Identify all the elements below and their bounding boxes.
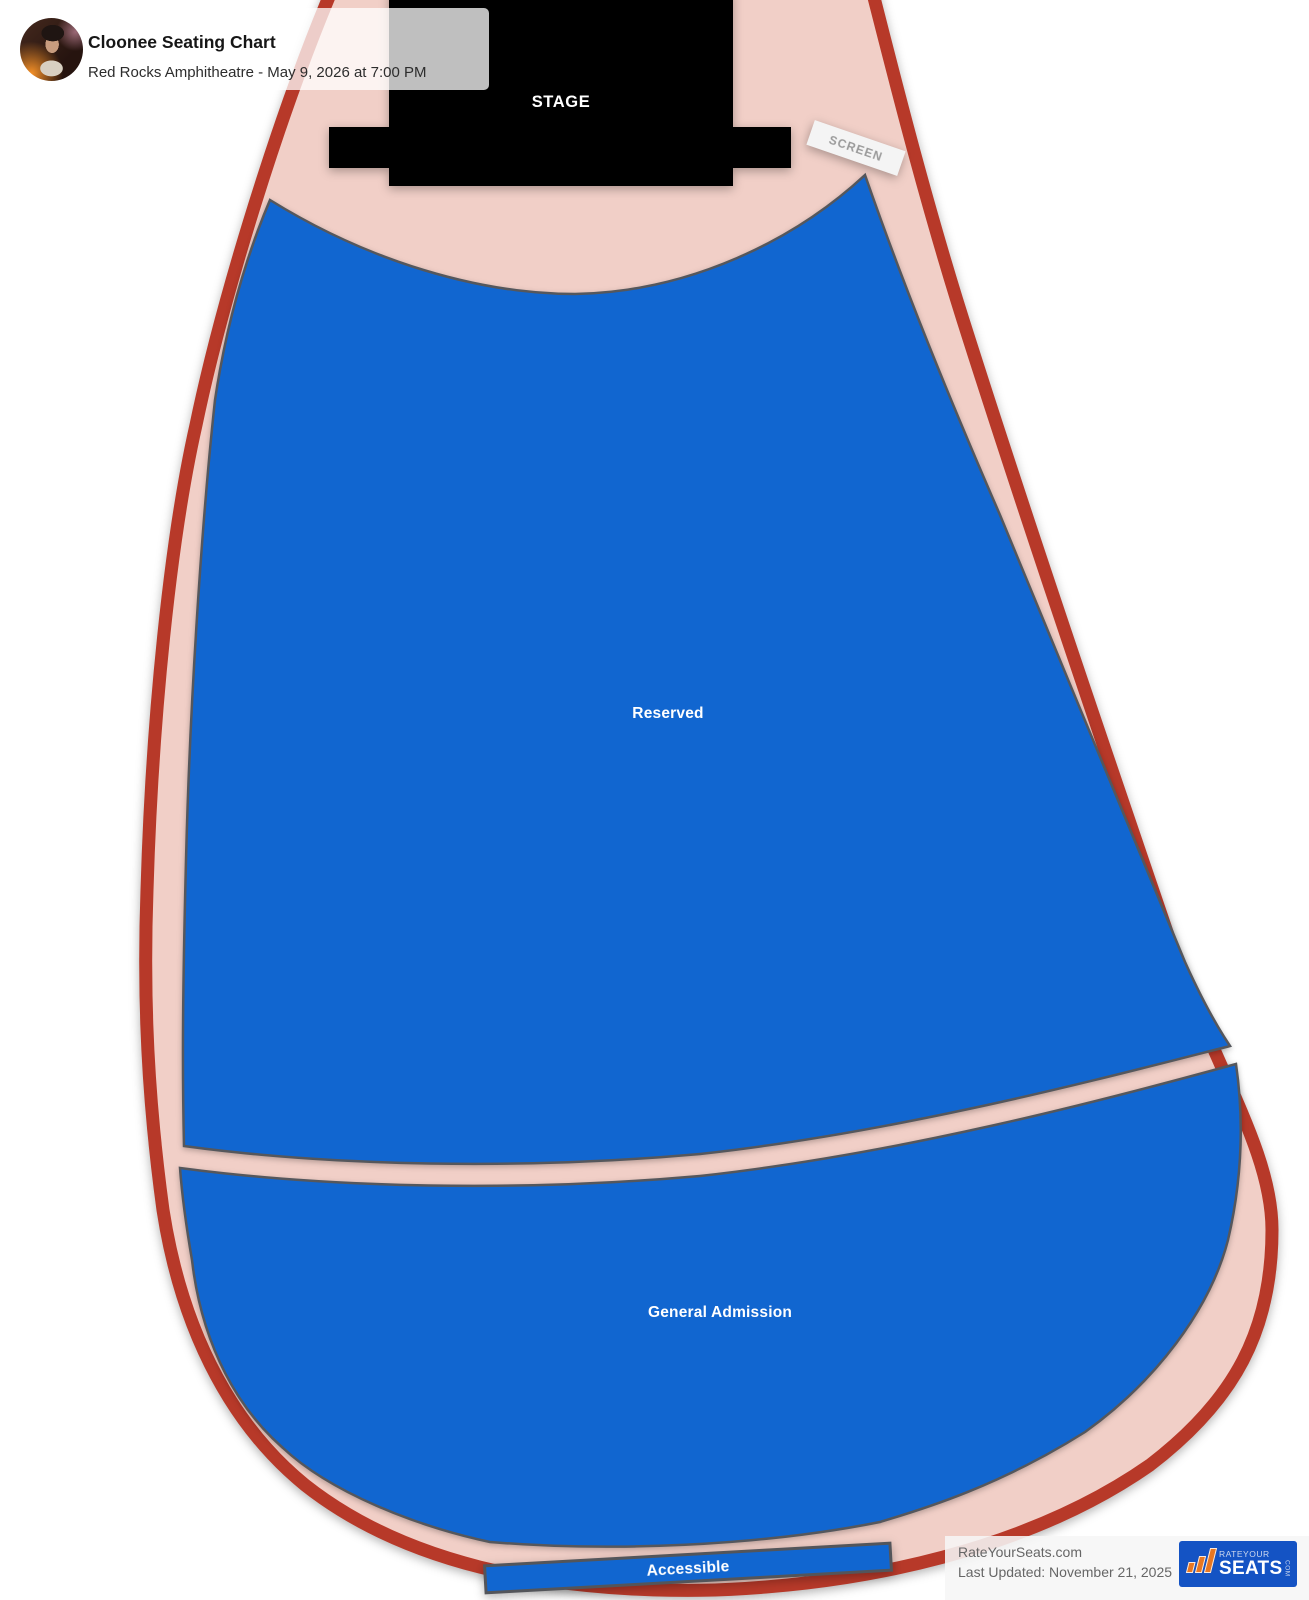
footer-last-updated: Last Updated: November 21, 2025 xyxy=(958,1564,1172,1580)
logo-word-main: SEATS xyxy=(1219,1559,1282,1578)
page-title: Cloonee Seating Chart xyxy=(88,32,276,53)
seating-chart-svg: Accessible STAGE SCREEN Reserved General… xyxy=(0,0,1309,1600)
event-subtitle: Red Rocks Amphitheatre - May 9, 2026 at … xyxy=(88,64,427,81)
logo-wordmark: RATEYOUR SEATS xyxy=(1219,1550,1282,1579)
seating-chart-page: Accessible STAGE SCREEN Reserved General… xyxy=(0,0,1309,1600)
stage-wings xyxy=(329,127,791,168)
header-card: Cloonee Seating Chart Red Rocks Amphithe… xyxy=(6,8,489,90)
stage-label: STAGE xyxy=(532,93,591,111)
logo-word-suffix: COM xyxy=(1283,1560,1290,1577)
bar-chart-icon xyxy=(1186,1548,1217,1573)
reserved-label: Reserved xyxy=(632,705,703,722)
logo-word-top: RATEYOUR xyxy=(1219,1550,1282,1559)
footer-site-name: RateYourSeats.com xyxy=(958,1544,1082,1560)
general-admission-label: General Admission xyxy=(648,1304,792,1321)
artist-avatar[interactable] xyxy=(20,18,83,81)
rateyourseats-logo[interactable]: RATEYOUR SEATS COM xyxy=(1179,1541,1297,1587)
